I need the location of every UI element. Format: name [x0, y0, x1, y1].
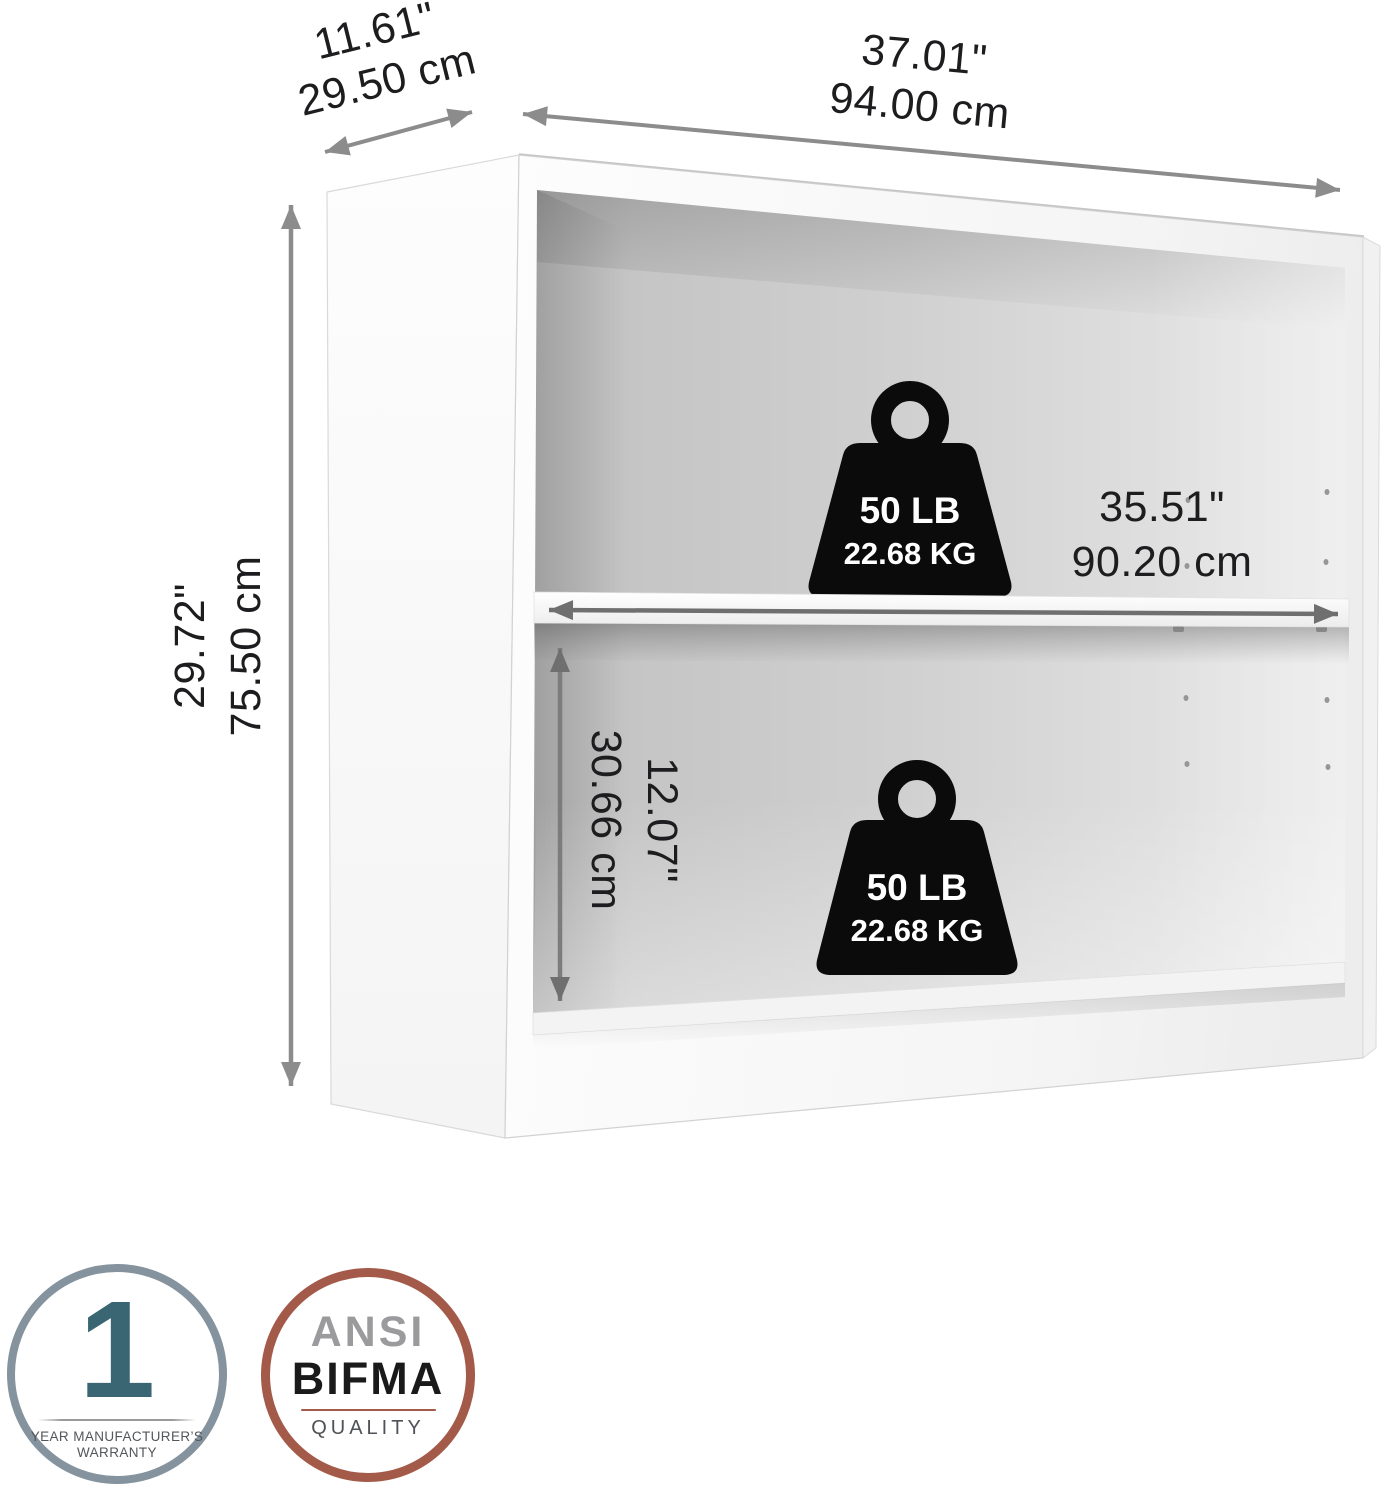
height-dimension-label: 29.72" 75.50 cm: [163, 556, 275, 737]
depth-arrow: [325, 112, 472, 152]
warranty-caption-line2: WARRANTY: [77, 1443, 157, 1463]
side-panel: [327, 155, 519, 1138]
ansi-label: ANSI: [311, 1310, 426, 1355]
quality-label: QUALITY: [311, 1417, 425, 1440]
lower-weight-kg: 22.68 KG: [851, 913, 984, 948]
under-shelf-shadow: [534, 623, 1349, 664]
shelf-width-dimension-label: 35.51" 90.20 cm: [1072, 480, 1253, 590]
opening-cm: 30.66 cm: [577, 730, 633, 911]
bifma-label: BIFMA: [292, 1355, 444, 1402]
product-dimension-diagram: 50 LB 22.68 KG 50 LB 22.68 KG: [0, 0, 1385, 1500]
opening-inches: 12.07": [633, 730, 689, 911]
shelf-cm: 90.20 cm: [1072, 535, 1253, 590]
height-cm: 75.50 cm: [219, 556, 275, 737]
warranty-badge: 1 YEAR MANUFACTURER’S WARRANTY: [7, 1264, 227, 1484]
upper-weight-kg: 22.68 KG: [844, 536, 977, 571]
warranty-years: 1: [79, 1287, 156, 1414]
bifma-divider: [301, 1409, 436, 1412]
bookcase-body: 50 LB 22.68 KG 50 LB 22.68 KG: [327, 154, 1380, 1138]
height-inches: 29.72": [163, 556, 219, 737]
warranty-divider: [38, 1419, 196, 1421]
right-edge: [1363, 237, 1380, 1058]
ansi-bifma-badge: ANSI BIFMA QUALITY: [261, 1268, 475, 1482]
lower-weight-lb: 50 LB: [867, 867, 968, 908]
opening-height-dimension-label: 12.07" 30.66 cm: [577, 730, 689, 911]
width-dimension-label: 37.01" 94.00 cm: [827, 22, 1016, 140]
upper-weight-lb: 50 LB: [860, 490, 961, 531]
bookcase-illustration: 50 LB 22.68 KG 50 LB 22.68 KG: [0, 0, 1385, 1500]
shelf-inches: 35.51": [1072, 480, 1253, 535]
